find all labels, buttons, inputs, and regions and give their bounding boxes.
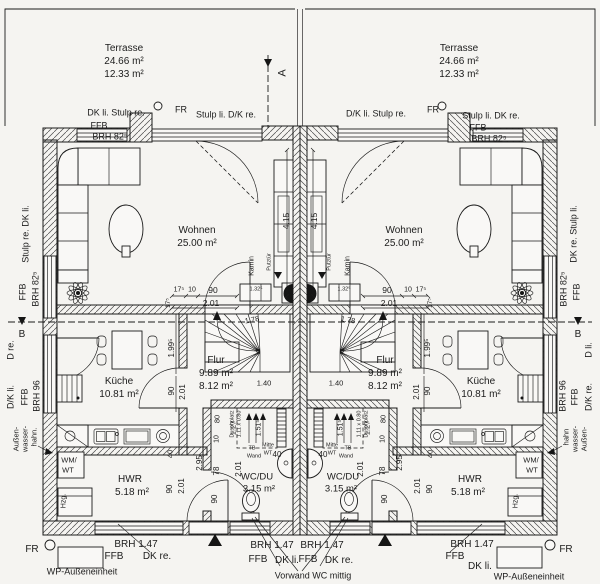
window-label: DK re. bbox=[143, 552, 171, 562]
appliance-label: WM/ bbox=[61, 456, 76, 464]
window-label: BRH 82⁵ bbox=[471, 135, 506, 144]
dim: 1.27 bbox=[229, 421, 237, 436]
appliance-label: WT bbox=[62, 466, 74, 474]
dim: 1.32⁵ bbox=[338, 287, 351, 293]
room-kueche-right-area: 10.81 m² bbox=[461, 390, 500, 400]
door-label: D/K li. Stulp re. bbox=[346, 110, 406, 119]
dim: 1.99⁵ bbox=[424, 339, 432, 358]
window-label: DK li. Stulp re. bbox=[87, 109, 145, 118]
window-label: FFB bbox=[105, 552, 124, 562]
tap-label: wasser- bbox=[21, 426, 29, 452]
dim: 1.99⁵ bbox=[168, 339, 176, 358]
drain-label: FR bbox=[559, 545, 572, 555]
dim: 90 bbox=[211, 495, 219, 504]
dim: 2.95 bbox=[396, 455, 404, 471]
window-label: BRH 82⁵ bbox=[92, 133, 127, 142]
door-label: BRH 96 bbox=[33, 380, 42, 412]
window-label: FFB bbox=[91, 122, 108, 131]
wall-label: Wand bbox=[339, 454, 353, 460]
dim: 90 bbox=[382, 286, 391, 295]
dim: 1.78 bbox=[340, 315, 356, 325]
window-label: DK re. Stulp li. bbox=[570, 205, 579, 263]
dim: 2.95 bbox=[196, 455, 204, 471]
dim: 80 bbox=[213, 415, 221, 423]
shower-label: 1.11 x 0.80 bbox=[237, 411, 243, 438]
dim: 2.01 bbox=[414, 478, 422, 494]
window-label: BRH 1.47 bbox=[450, 540, 493, 550]
dim: 40 bbox=[319, 451, 328, 459]
room-hwr-right-area: 5.18 m² bbox=[451, 488, 485, 498]
dim: 17⁵ bbox=[166, 298, 173, 308]
room-wohnen-left-area: 25.00 m² bbox=[177, 239, 216, 249]
dim: 90 bbox=[381, 495, 389, 504]
room-hwr-left: HWR bbox=[118, 475, 142, 485]
dim: 1.27 bbox=[363, 421, 371, 436]
basin-label: Mitte bbox=[326, 443, 338, 449]
room-flur-right-area1: 9.89 m² bbox=[368, 369, 402, 379]
dim: 40 bbox=[273, 451, 282, 459]
section-b-letter: B bbox=[19, 330, 26, 340]
door-label: Stulp li. D/K re. bbox=[196, 111, 256, 120]
room-flur-right: Flur bbox=[376, 356, 393, 366]
appliance-label: Hzg. bbox=[513, 494, 520, 508]
wall-label: Wand bbox=[247, 454, 261, 460]
dim: 2.01 bbox=[203, 299, 220, 308]
dim: 90 bbox=[426, 485, 434, 494]
dim: 80 bbox=[379, 415, 387, 423]
dim: 90 bbox=[424, 387, 432, 396]
room-hwr-right: HWR bbox=[458, 475, 482, 485]
dim: 2.01 bbox=[357, 461, 365, 477]
door-label: FFB bbox=[21, 389, 30, 406]
dim: 2.01 bbox=[178, 478, 186, 494]
dim: 4.15 bbox=[282, 213, 291, 230]
dim: 17⁵ bbox=[174, 287, 185, 294]
appliance-label: WM/ bbox=[523, 456, 538, 464]
room-flur-left-area2: 8.12 m² bbox=[199, 382, 233, 392]
basin-label: WT bbox=[264, 451, 273, 457]
tap-label: Außen- bbox=[580, 427, 588, 452]
window-label: DK li. bbox=[275, 556, 299, 566]
dim: 10 bbox=[380, 435, 387, 443]
room-wcdu-right: WC/DU bbox=[327, 472, 359, 482]
room-wcdu-left-area: 3.15 m² bbox=[243, 484, 275, 494]
door-label: D/K li. bbox=[7, 385, 16, 409]
wp-label: WP-Außeneinheit bbox=[47, 568, 118, 577]
tap-label: hahn bbox=[562, 429, 570, 446]
room-kueche-right: Küche bbox=[467, 377, 495, 387]
basin-label: WT bbox=[328, 451, 337, 457]
dim: 78 bbox=[379, 467, 387, 476]
wp-label: WP-Außeneinheit bbox=[494, 573, 565, 582]
basin-label: Mitte bbox=[262, 443, 274, 449]
door-label: D re. bbox=[7, 340, 16, 360]
room-wcdu-right-area: 3.15 m² bbox=[325, 484, 357, 494]
window-label: Stulp re. DK li. bbox=[22, 205, 31, 263]
section-a-letter: A bbox=[278, 69, 289, 76]
window-label: FFB bbox=[249, 555, 268, 565]
dim: 17⁵ bbox=[428, 298, 435, 308]
window-label: BRH 1.47 bbox=[114, 540, 157, 550]
window-label: DK re. bbox=[325, 556, 353, 566]
window-label: FFB bbox=[299, 555, 318, 565]
window-label: FFB bbox=[573, 284, 582, 301]
terrace-right-area2: 12.33 m² bbox=[439, 70, 478, 80]
dim: 78 bbox=[213, 467, 221, 476]
dim: 1.51⁵ bbox=[256, 420, 263, 437]
tap-label: wasser- bbox=[571, 426, 579, 452]
room-flur-left-area1: 9.89 m² bbox=[199, 369, 233, 379]
drain-label: FR bbox=[427, 106, 439, 115]
dim: 40 bbox=[426, 450, 434, 458]
door-label: BRH 96 bbox=[559, 380, 568, 412]
drain-label: FR bbox=[25, 545, 38, 555]
door-label: D/K re. bbox=[585, 383, 594, 411]
window-label: BRH 82⁵ bbox=[32, 271, 41, 306]
room-wohnen-left: Wohnen bbox=[178, 226, 215, 236]
dim: 1.78 bbox=[244, 315, 260, 325]
room-wohnen-right-area: 25.00 m² bbox=[384, 239, 423, 249]
window-label: FFB bbox=[446, 552, 465, 562]
appliance-label: WT bbox=[526, 466, 538, 474]
terrace-left-area1: 24.66 m² bbox=[104, 57, 143, 67]
appliance-label: Hzg. bbox=[61, 494, 68, 508]
kamin-label: Kamin bbox=[345, 256, 352, 276]
dim: 10 bbox=[214, 435, 221, 443]
terrace-right-area1: 24.66 m² bbox=[439, 57, 478, 67]
note-vorwand: Vorwand WC mittig bbox=[275, 572, 352, 581]
room-hwr-left-area: 5.18 m² bbox=[115, 488, 149, 498]
putztuer-label: Putztür bbox=[267, 253, 273, 270]
room-flur-left: Flur bbox=[207, 356, 224, 366]
door-label: D li. bbox=[585, 342, 594, 358]
room-wohnen-right: Wohnen bbox=[385, 226, 422, 236]
dim: 4.15 bbox=[310, 213, 319, 230]
dim: 2.01 bbox=[381, 299, 398, 308]
room-kueche-left-area: 10.81 m² bbox=[99, 390, 138, 400]
window-label: BRH 1.47 bbox=[300, 541, 343, 551]
tap-label: hahn. bbox=[30, 428, 38, 447]
dim: 10 bbox=[404, 287, 412, 294]
dim: 1.40 bbox=[257, 379, 272, 387]
wall-label: TB bbox=[248, 446, 255, 452]
floor-plan: Terrasse24.66 m²12.33 m²Terrasse24.66 m²… bbox=[0, 0, 600, 584]
putztuer-label: Putztür bbox=[327, 253, 333, 270]
kamin-label: Kamin bbox=[249, 256, 256, 276]
dim: 1.32⁵ bbox=[250, 287, 263, 293]
label-layer: Terrasse24.66 m²12.33 m²Terrasse24.66 m²… bbox=[0, 0, 600, 584]
window-label: Stulp li. DK re. bbox=[462, 112, 520, 121]
dim: 2.01 bbox=[235, 461, 243, 477]
dim: 1.51⁵ bbox=[338, 420, 345, 437]
door-label: FFB bbox=[571, 389, 580, 406]
window-label: BRH 82⁵ bbox=[560, 271, 569, 306]
dim: 2.01 bbox=[413, 384, 421, 400]
dim: 90 bbox=[166, 485, 174, 494]
dim: 10 bbox=[188, 287, 196, 294]
room-wcdu-left: WC/DU bbox=[241, 472, 273, 482]
section-b-letter: B bbox=[575, 330, 582, 340]
wall-label: TB bbox=[344, 446, 351, 452]
window-label: BRH 1.47 bbox=[250, 541, 293, 551]
terrace-left-name: Terrasse bbox=[105, 44, 143, 54]
window-label: FFB bbox=[470, 124, 487, 133]
terrace-left-area2: 12.33 m² bbox=[104, 70, 143, 80]
terrace-right-name: Terrasse bbox=[440, 44, 478, 54]
window-label: DK li. bbox=[468, 562, 492, 572]
room-kueche-left: Küche bbox=[105, 377, 133, 387]
room-flur-right-area2: 8.12 m² bbox=[368, 382, 402, 392]
dim: 2.01 bbox=[179, 384, 187, 400]
tap-label: Außen- bbox=[12, 427, 20, 452]
dim: 40 bbox=[166, 450, 174, 458]
dim: 90 bbox=[208, 286, 217, 295]
drain-label: FR bbox=[175, 106, 187, 115]
dim: 1.40 bbox=[329, 379, 344, 387]
window-label: FFB bbox=[19, 284, 28, 301]
dim: 90 bbox=[168, 387, 176, 396]
dim: 17⁵ bbox=[416, 287, 427, 294]
